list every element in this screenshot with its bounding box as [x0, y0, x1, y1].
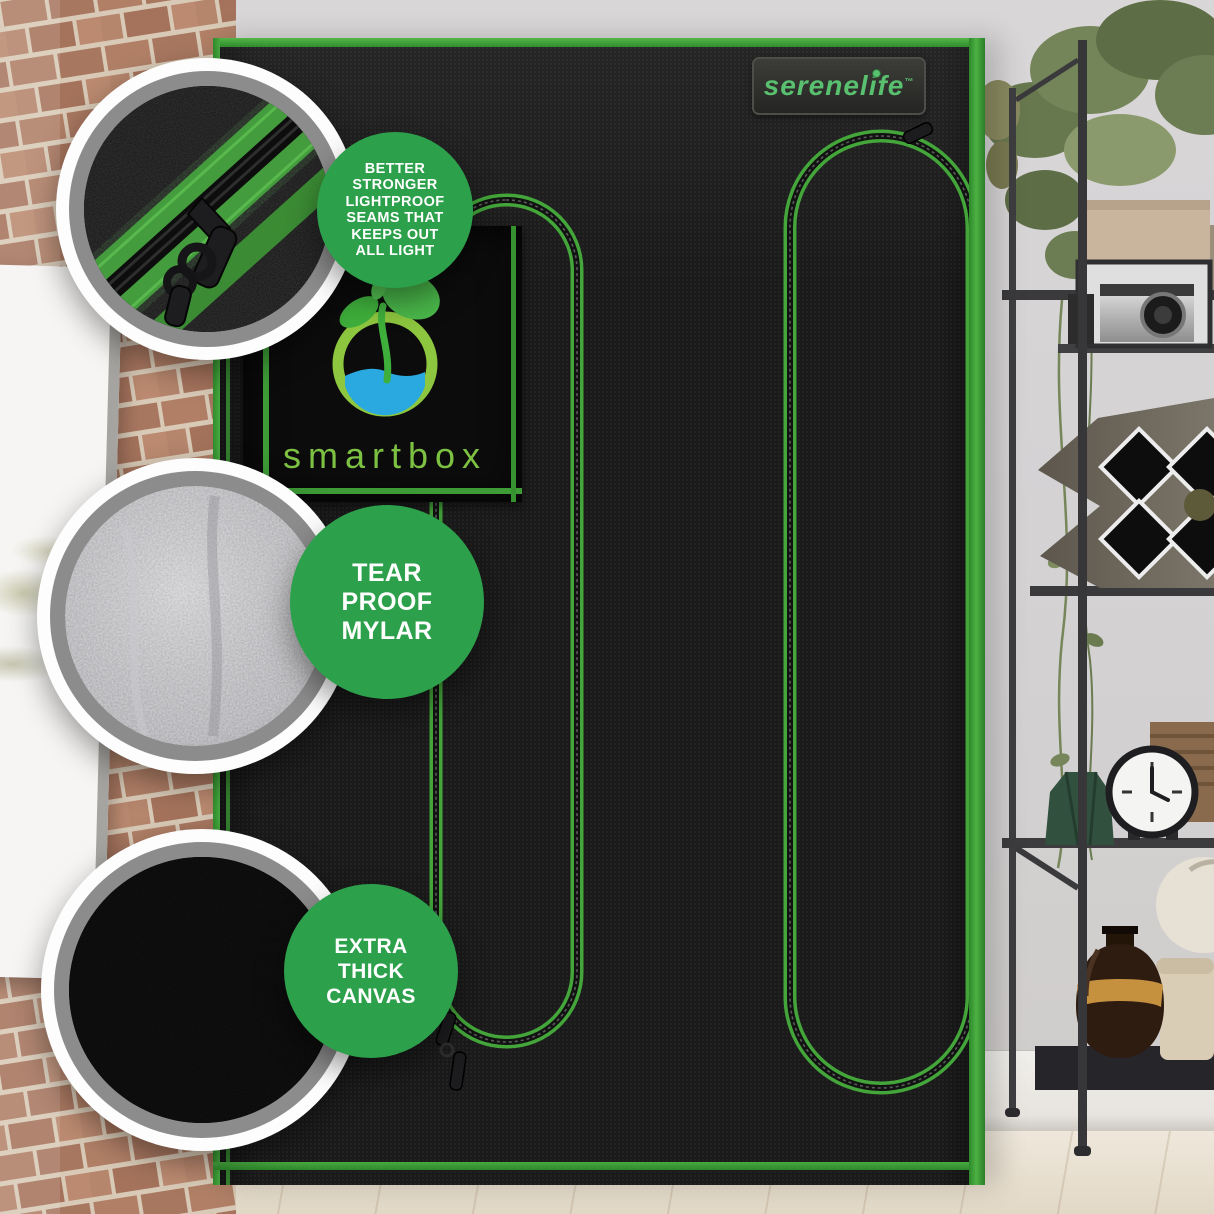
callout-line: MYLAR	[342, 617, 433, 646]
zipper-closeup-swatch	[56, 58, 358, 360]
callout-line: SEAMS THAT	[346, 210, 443, 227]
callout-line: STRONGER	[352, 177, 437, 194]
smartbox-logo-text: smartbox	[283, 435, 487, 476]
callout-line: KEEPS OUT	[351, 227, 438, 244]
callout-line: EXTRA	[334, 934, 407, 959]
callout-line: BETTER	[365, 161, 425, 178]
callout-line: CANVAS	[326, 984, 416, 1009]
trademark-symbol: ™	[904, 77, 914, 87]
product-marketing-image: serenelife™ smartbox	[0, 0, 1214, 1214]
right-door-zipper	[790, 136, 972, 1088]
callout-extra-thick-canvas: EXTRA THICK CANVAS	[284, 884, 458, 1058]
callout-line: LIGHTPROOF	[345, 194, 444, 211]
callout-lightproof-seams: BETTER STRONGER LIGHTPROOF SEAMS THAT KE…	[317, 132, 473, 288]
tent-right-trim	[969, 38, 985, 1185]
callout-line: THICK	[338, 959, 404, 984]
callout-tear-proof-mylar: TEAR PROOF MYLAR	[290, 505, 484, 699]
zipper-closeup-photo	[84, 86, 330, 332]
serenelife-brand-patch: serenelife™	[752, 57, 926, 115]
serenelife-logo-text: serenelife™	[764, 70, 915, 102]
callout-line: ALL LIGHT	[355, 243, 434, 260]
logo-dot-icon	[872, 69, 881, 78]
callout-line: TEAR	[352, 559, 422, 588]
mylar-texture-photo	[65, 486, 325, 746]
callout-line: PROOF	[342, 588, 433, 617]
